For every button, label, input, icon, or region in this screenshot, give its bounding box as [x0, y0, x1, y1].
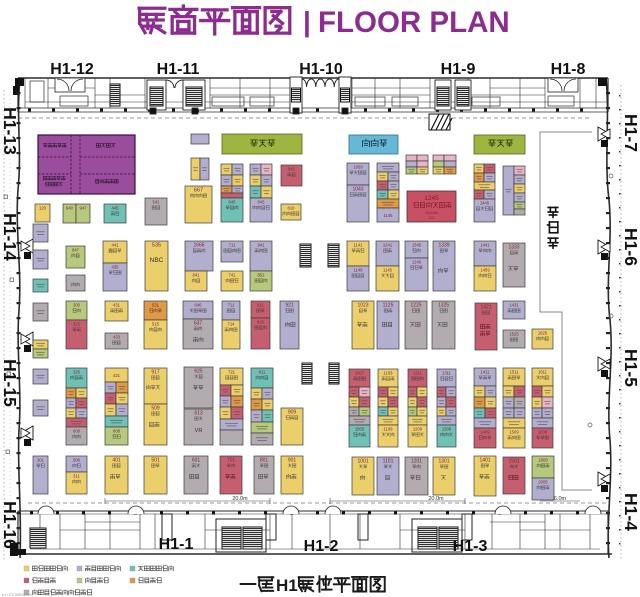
svg-text:k·h·CC35532-06: k·h·CC35532-06 [2, 592, 32, 597]
svg-text:841: 841 [193, 273, 201, 278]
svg-text:947: 947 [80, 206, 88, 211]
svg-text:535: 535 [152, 243, 161, 249]
svg-text:943: 943 [288, 167, 296, 172]
svg-text:711: 711 [228, 303, 235, 308]
svg-text:H1-5: H1-5 [621, 349, 640, 387]
svg-text:H1-10: H1-10 [299, 61, 343, 78]
svg-text:810: 810 [288, 206, 296, 211]
svg-text:6.0m: 6.0m [554, 496, 567, 502]
svg-text:801: 801 [260, 458, 269, 464]
svg-text:1209: 1209 [413, 427, 423, 432]
svg-text:H1-9: H1-9 [441, 61, 476, 78]
svg-text:1421: 1421 [480, 305, 491, 311]
svg-text:H1-2: H1-2 [304, 538, 339, 555]
svg-text:H1-6: H1-6 [621, 228, 640, 266]
svg-text:1445: 1445 [480, 201, 490, 206]
svg-text:401: 401 [112, 458, 121, 464]
svg-text:825: 825 [257, 320, 265, 325]
svg-text:646: 646 [195, 303, 203, 308]
svg-text:421: 421 [113, 373, 121, 378]
svg-text:845: 845 [258, 200, 266, 205]
svg-text:608: 608 [73, 429, 81, 434]
svg-text:NBC: NBC [150, 257, 164, 264]
svg-text:1101: 1101 [383, 459, 394, 465]
svg-text:667: 667 [194, 188, 203, 194]
svg-text:851: 851 [258, 273, 266, 278]
svg-text:608: 608 [113, 429, 121, 434]
svg-text:1103: 1103 [383, 371, 393, 376]
svg-text:1409: 1409 [480, 430, 490, 435]
svg-text:H1-8: H1-8 [551, 61, 586, 78]
svg-text:325: 325 [73, 322, 81, 327]
svg-text:1241: 1241 [383, 243, 393, 248]
svg-text:1325: 1325 [438, 303, 449, 309]
svg-text:1509: 1509 [509, 430, 519, 435]
svg-text:541: 541 [153, 200, 161, 205]
svg-text:1511: 1511 [509, 370, 519, 375]
svg-text:433: 433 [113, 335, 121, 340]
svg-text:1023: 1023 [357, 303, 368, 309]
svg-text:1441: 1441 [480, 243, 490, 248]
svg-text:1149: 1149 [353, 268, 363, 273]
svg-text:509: 509 [151, 406, 160, 412]
svg-text:1411: 1411 [480, 370, 490, 375]
svg-text:H1-14: H1-14 [0, 213, 20, 261]
svg-text:12x10m: 12x10m [425, 211, 438, 215]
svg-text:940: 940 [66, 206, 74, 211]
svg-text:921: 921 [285, 303, 294, 309]
svg-text:645: 645 [229, 200, 237, 205]
svg-text:501: 501 [151, 458, 160, 464]
svg-text:1459: 1459 [480, 268, 490, 273]
svg-text:FLOOR PLAN: FLOOR PLAN [318, 6, 510, 39]
svg-text:1309: 1309 [442, 427, 452, 432]
svg-text:1245: 1245 [424, 195, 439, 202]
svg-text:H1-7: H1-7 [621, 114, 640, 152]
svg-text:531: 531 [152, 303, 160, 308]
svg-text:H1-4: H1-4 [621, 493, 640, 531]
svg-text:506: 506 [73, 458, 81, 463]
svg-text:H1-3: H1-3 [453, 538, 488, 555]
svg-text:711: 711 [229, 243, 236, 248]
svg-text:1005: 1005 [355, 427, 365, 432]
svg-text:20.0m: 20.0m [428, 496, 444, 502]
svg-text:909: 909 [288, 410, 297, 416]
svg-text:1401: 1401 [479, 458, 490, 464]
svg-text:741: 741 [229, 273, 237, 278]
svg-text:301: 301 [37, 458, 45, 463]
svg-text:325: 325 [73, 370, 81, 375]
svg-text:435: 435 [112, 265, 120, 270]
svg-text:1625: 1625 [538, 331, 548, 336]
svg-text:300: 300 [73, 303, 81, 308]
svg-text:1311: 1311 [442, 371, 452, 376]
svg-text:1059: 1059 [353, 165, 363, 170]
svg-text:721: 721 [228, 370, 236, 375]
svg-text:1611: 1611 [538, 370, 548, 375]
svg-text:1339: 1339 [438, 243, 449, 249]
svg-text:H1-12: H1-12 [50, 61, 94, 78]
svg-text:H1: H1 [276, 576, 298, 595]
svg-text:1608: 1608 [538, 458, 548, 463]
svg-text:625: 625 [194, 369, 203, 375]
svg-text:1525: 1525 [509, 332, 519, 337]
svg-text:1501: 1501 [508, 459, 519, 465]
svg-text:2005: 2005 [538, 480, 548, 485]
svg-text:1333: 1333 [508, 245, 519, 251]
svg-text:1007: 1007 [355, 371, 365, 376]
svg-text:1001: 1001 [357, 459, 368, 465]
svg-text:445: 445 [112, 206, 120, 211]
svg-text:701: 701 [227, 458, 236, 464]
svg-text:311: 311 [73, 474, 80, 479]
svg-text:1145: 1145 [383, 268, 393, 273]
svg-text:941: 941 [258, 243, 266, 248]
svg-text:601: 601 [192, 458, 201, 464]
svg-text:H1-13: H1-13 [0, 107, 20, 155]
svg-text:1225: 1225 [410, 303, 421, 309]
svg-text:811: 811 [259, 370, 266, 375]
svg-text:H1-1: H1-1 [159, 536, 194, 553]
svg-text:1211: 1211 [413, 371, 423, 376]
svg-text:1609: 1609 [538, 430, 548, 435]
svg-text:1145: 1145 [383, 213, 393, 218]
svg-text:901: 901 [288, 458, 297, 464]
svg-text:431: 431 [113, 303, 121, 308]
svg-text:637: 637 [194, 321, 203, 327]
svg-text:917: 917 [151, 370, 160, 376]
svg-text:613: 613 [194, 411, 203, 417]
svg-text:1141: 1141 [353, 243, 363, 248]
svg-text:|: | [303, 6, 311, 37]
svg-text:1431: 1431 [509, 303, 519, 308]
svg-text:H1-11: H1-11 [157, 61, 200, 78]
svg-text:1125: 1125 [383, 303, 394, 309]
svg-text:1249: 1249 [412, 260, 422, 265]
svg-text:H1-16: H1-16 [0, 501, 20, 549]
svg-text:1345: 1345 [412, 243, 422, 248]
svg-text:1301: 1301 [438, 459, 449, 465]
svg-text:VR: VR [195, 428, 203, 434]
svg-text:441: 441 [112, 243, 120, 248]
svg-text:515: 515 [152, 322, 160, 327]
svg-text:1201: 1201 [411, 459, 422, 465]
svg-text:1109: 1109 [383, 427, 393, 432]
svg-text:20.0m: 20.0m [232, 496, 248, 502]
svg-text:847: 847 [72, 248, 80, 253]
svg-text:1043: 1043 [352, 187, 363, 193]
svg-text:H1-15: H1-15 [0, 359, 20, 407]
svg-text:714: 714 [228, 322, 236, 327]
svg-text:120: 120 [429, 216, 435, 220]
svg-text:1666: 1666 [193, 243, 204, 249]
svg-text:811: 811 [257, 303, 264, 308]
svg-text:120: 120 [39, 206, 47, 211]
